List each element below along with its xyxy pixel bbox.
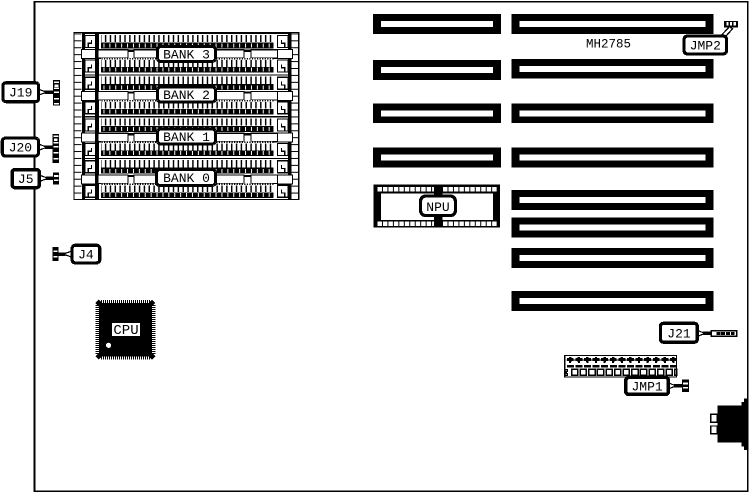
svg-text:BANK 0: BANK 0 — [163, 171, 210, 186]
svg-text:MH2785: MH2785 — [586, 38, 631, 52]
svg-text:CPU: CPU — [113, 323, 138, 339]
svg-text:BANK 1: BANK 1 — [163, 130, 210, 145]
svg-text:BANK 3: BANK 3 — [163, 48, 210, 63]
svg-text:NPU: NPU — [426, 200, 449, 215]
svg-text:J21: J21 — [667, 326, 691, 341]
svg-text:BANK 2: BANK 2 — [163, 88, 210, 103]
svg-text:J5: J5 — [18, 172, 34, 187]
svg-text:JMP1: JMP1 — [631, 380, 662, 395]
svg-text:J4: J4 — [78, 247, 94, 262]
svg-text:J20: J20 — [9, 141, 32, 156]
svg-text:JMP2: JMP2 — [690, 39, 721, 54]
svg-text:J19: J19 — [9, 85, 32, 100]
